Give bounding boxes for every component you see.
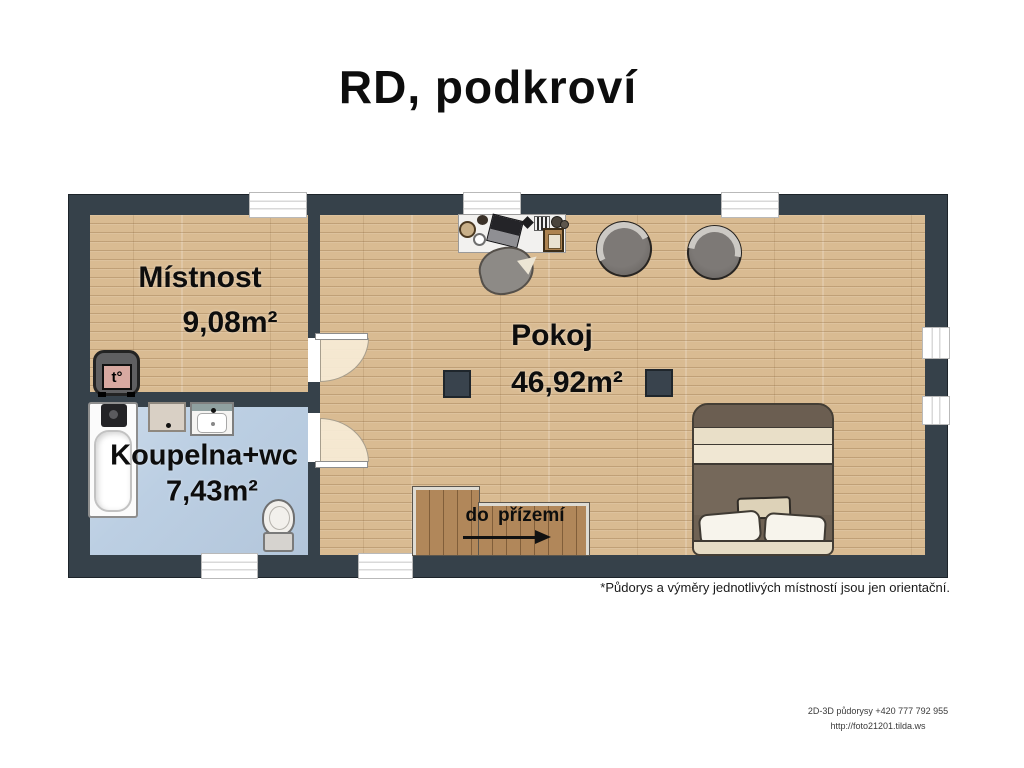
- credits-phone: 2D-3D půdorysy +420 777 792 955: [778, 704, 978, 719]
- washer-cabinet: [148, 402, 186, 432]
- room-koupelna-name: Koupelna+wc: [110, 440, 298, 473]
- bed-headboard: [694, 540, 832, 554]
- window: [202, 554, 257, 578]
- clipboard-icon: [543, 228, 564, 252]
- window: [250, 193, 306, 217]
- stairs-direction-arrow: [463, 536, 537, 539]
- chimney-block: [645, 369, 673, 397]
- stove-foot: [98, 392, 106, 397]
- room-koupelna-area: 7,43m²: [166, 476, 258, 509]
- drain-icon: [211, 422, 215, 426]
- window: [923, 397, 949, 424]
- stove-icon: t°: [93, 350, 140, 396]
- door-opening: [308, 338, 320, 382]
- shower-fixture-icon: [101, 404, 127, 427]
- credits-block: 2D-3D půdorysy +420 777 792 955 http://f…: [778, 704, 978, 734]
- door-leaf: [315, 461, 368, 468]
- floorplan-page: RD, podkroví do přízemí: [0, 0, 1024, 768]
- room-mistnost-area: 9,08m²: [182, 306, 277, 340]
- stove-foot: [127, 392, 135, 397]
- chimney-block: [443, 370, 471, 398]
- desk-accessory-icon: [473, 233, 486, 246]
- toilet-tank: [263, 532, 294, 552]
- bed: [692, 403, 834, 556]
- washbasin: [190, 402, 234, 436]
- desk-accessory-icon: [477, 215, 488, 225]
- door-opening: [308, 413, 320, 462]
- toilet-bowl: [262, 499, 295, 536]
- stove-temperature-label: t°: [102, 364, 132, 390]
- bed-blanket-fold: [694, 405, 832, 427]
- window: [923, 328, 949, 358]
- page-title: RD, podkroví: [339, 60, 637, 114]
- bed-sheet-band: [694, 445, 832, 465]
- faucet-icon: [211, 408, 216, 413]
- credits-url: http://foto21201.tilda.ws: [778, 719, 978, 734]
- disclaimer-text: *Půdorys a výměry jednotlivých místností…: [600, 580, 950, 595]
- room-pokoj-area: 46,92m²: [511, 366, 623, 400]
- door-leaf: [315, 333, 368, 340]
- window: [722, 193, 778, 217]
- stairs-arrow-head-icon: [535, 530, 551, 544]
- window: [359, 554, 412, 578]
- room-pokoj-name: Pokoj: [511, 319, 593, 353]
- room-mistnost-name: Místnost: [138, 261, 261, 295]
- stairs-label: do přízemí: [450, 505, 580, 527]
- bed-sheet-band: [694, 427, 832, 445]
